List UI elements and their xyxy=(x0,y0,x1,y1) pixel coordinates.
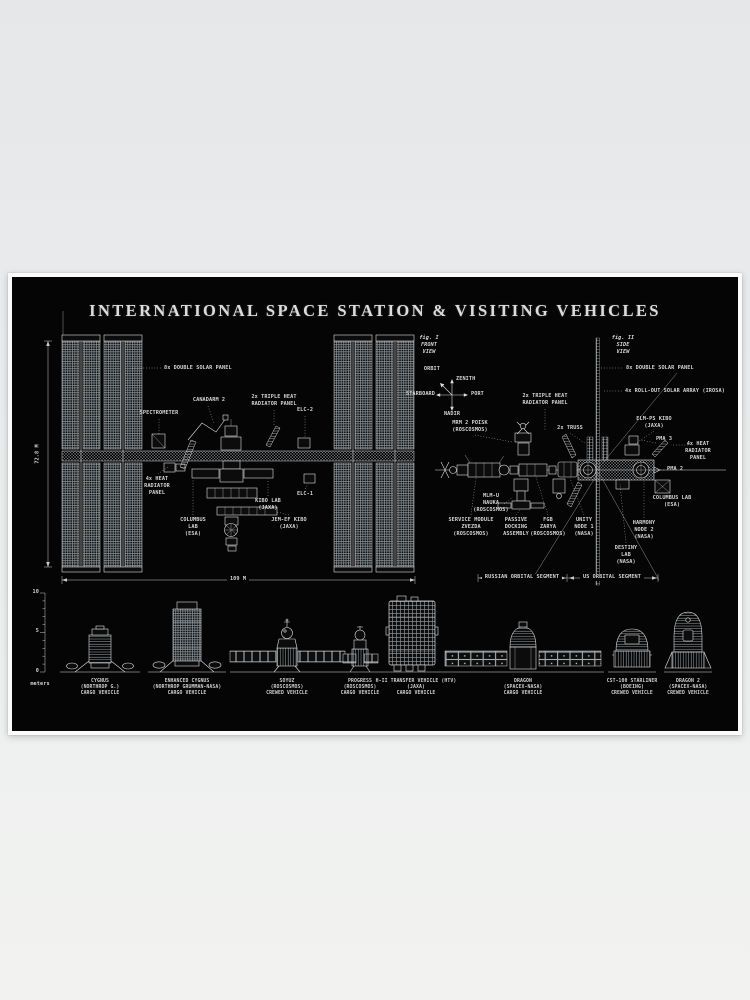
segment-us: US ORBITAL SEGMENT xyxy=(580,574,644,581)
label-front-jem-ef: JEM-EF KIBO (JAXA) xyxy=(271,517,306,531)
vehicle-label-dragon2: DRAGON 2 (SPACEX-NASA) CREWED VEHICLE xyxy=(667,679,709,698)
label-side-heat-radiator: 4x HEAT RADIATOR PANEL xyxy=(685,441,711,461)
vehicle-starliner xyxy=(612,629,652,667)
vehicle-soyuz xyxy=(230,619,345,672)
label-front-columbus: COLUMBUS LAB (ESA) xyxy=(180,517,206,537)
poster-title: INTERNATIONAL SPACE STATION & VISITING V… xyxy=(12,301,738,321)
label-side-double-solar: 8x DOUBLE SOLAR PANEL xyxy=(626,365,694,372)
label-front-canadarm: CANADARM 2 xyxy=(193,397,225,404)
label-side-harmony: HARMONY NODE 2 (NASA) xyxy=(633,520,656,540)
label-side-mrm2: MRM 2 POISK (ROSCOSMOS) xyxy=(452,420,487,434)
scale-tick-5: 5 xyxy=(36,628,39,635)
compass-starboard: STARBOARD xyxy=(406,391,435,398)
label-side-irosa: 4x ROLL-OUT SOLAR ARRAY (IROSA) xyxy=(625,388,725,395)
label-side-destiny: DESTINY LAB (NASA) xyxy=(615,545,638,565)
compass-rose xyxy=(436,379,468,411)
label-side-docking: PASSIVE DOCKING ASSEMBLY xyxy=(503,517,529,537)
vehicle-label-soyuz: SOYUZ (ROSCOSMOS) CREWED VEHICLE xyxy=(266,679,308,698)
vehicle-label-cygnus: CYGNUS (NORTHROP G.) CARGO VEHICLE xyxy=(81,679,120,698)
vehicle-label-dragon: DRAGON (SPACEX-NASA) CARGO VEHICLE xyxy=(504,679,543,698)
segment-russian: RUSSIAN ORBITAL SEGMENT xyxy=(482,574,562,581)
vehicle-label-starliner: CST-100 STARLINER (BOEING) CREWED VEHICL… xyxy=(607,679,658,698)
compass-port: PORT xyxy=(471,391,484,398)
label-side-elm-ps: ELM-PS KIBO (JAXA) xyxy=(636,416,671,430)
framed-poster: INTERNATIONAL SPACE STATION & VISITING V… xyxy=(8,273,742,735)
page: { "poster": { "title": "INTERNATIONAL SP… xyxy=(0,0,750,1000)
scale-unit: meters xyxy=(30,681,49,688)
dimension-width: 109 M xyxy=(227,576,249,583)
vehicle-label-progress: PROGRESS (ROSCOSMOS) CARGO VEHICLE xyxy=(341,679,380,698)
compass-orbit: ORBIT xyxy=(424,366,440,373)
label-front-elc1: ELC-1 xyxy=(297,491,313,498)
vehicles-drawing xyxy=(60,596,712,672)
compass-nadir: NADIR xyxy=(444,411,460,418)
scale-bar xyxy=(40,593,45,672)
vehicle-enhanced-cygnus xyxy=(153,602,221,672)
label-side-zvezda: SERVICE MODULE ZVEZDA (ROSCOSMOS) xyxy=(448,517,493,537)
vehicle-progress xyxy=(343,626,378,672)
front-view-drawing xyxy=(44,311,415,584)
label-side-columbus: COLUMBUS LAB (ESA) xyxy=(653,495,692,509)
scale-tick-10: 10 xyxy=(33,589,39,596)
label-front-elc2: ELC-2 xyxy=(297,407,313,414)
vehicle-label-htv: H-II TRANSFER VEHICLE (HTV) (JAXA) CARGO… xyxy=(376,679,457,698)
label-front-kibo: KIBO LAB (JAXA) xyxy=(255,498,281,512)
side-view-drawing xyxy=(435,338,726,585)
label-front-spectrometer: SPECTROMETER xyxy=(140,410,179,417)
label-side-zarya: FGB ZARYA (ROSCOSMOS) xyxy=(530,517,565,537)
label-side-pma3: PMA 3 xyxy=(656,436,672,443)
front-view-caption: fig. I FRONT VIEW xyxy=(419,335,438,355)
label-side-pma2: PMA 2 xyxy=(667,466,683,473)
dimension-height: 72.8 M xyxy=(35,444,42,463)
poster-canvas: INTERNATIONAL SPACE STATION & VISITING V… xyxy=(12,277,738,731)
label-front-double-solar: 8x DOUBLE SOLAR PANEL xyxy=(164,365,232,372)
vehicle-cygnus xyxy=(67,626,134,672)
side-view-caption: fig. II SIDE VIEW xyxy=(612,335,635,355)
label-side-truss: 2x TRUSS xyxy=(557,425,583,432)
scale-tick-0: 0 xyxy=(36,668,39,675)
label-front-heat-radiator: 4x HEAT RADIATOR PANEL xyxy=(144,476,170,496)
compass-zenith: ZENITH xyxy=(456,376,475,383)
label-side-mlm: MLM-U NAUKA (ROSCOSMOS) xyxy=(473,493,508,513)
label-side-triple-radiator: 2x TRIPLE HEAT RADIATOR PANEL xyxy=(522,393,567,407)
label-front-triple-radiator: 2x TRIPLE HEAT RADIATOR PANEL xyxy=(251,394,296,408)
vehicle-htv xyxy=(386,596,438,671)
vehicle-dragon2 xyxy=(665,612,711,668)
vehicle-dragon xyxy=(445,622,601,669)
label-side-unity: UNITY NODE 1 (NASA) xyxy=(574,517,593,537)
vehicle-label-enhanced-cygnus: ENHANCED CYGNUS (NORTHROP GRUMMAN-NASA) … xyxy=(153,679,222,698)
